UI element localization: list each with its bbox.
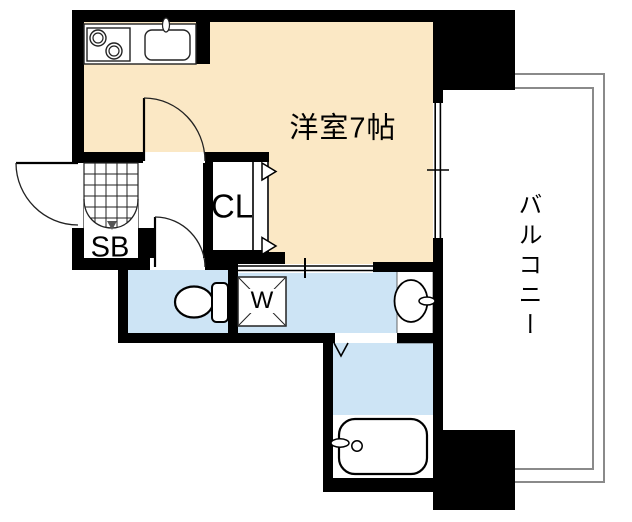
main-room-label: 洋室7帖 bbox=[289, 115, 396, 144]
wall-window-top-stub bbox=[433, 90, 443, 103]
wall-counter-stub bbox=[196, 22, 210, 64]
entry-door-arc bbox=[16, 163, 78, 225]
wall-wet-bottom bbox=[118, 333, 335, 343]
pillar-top-right bbox=[433, 10, 515, 90]
bathroom-door-opening bbox=[335, 333, 397, 343]
wall-basin-right bbox=[433, 238, 443, 343]
wall-bath-top bbox=[397, 333, 443, 343]
wall-closet-top bbox=[203, 152, 269, 162]
washer-label: W bbox=[249, 289, 276, 313]
wall-slide-right bbox=[373, 262, 433, 272]
entrance-opening bbox=[72, 163, 84, 226]
kitchen-counter bbox=[84, 18, 196, 64]
wall-bath-right bbox=[433, 343, 443, 430]
wall-left bbox=[72, 10, 84, 163]
floor-plan: 洋室7帖 CL SB W バルコニー bbox=[0, 0, 632, 522]
wall-toilet-divider bbox=[228, 258, 238, 343]
stove-icon bbox=[87, 28, 130, 61]
balcony-label: バルコニー bbox=[515, 192, 539, 342]
closet-label: CL bbox=[211, 190, 253, 223]
wall-genkan-top bbox=[72, 152, 143, 163]
toilet-door-opening bbox=[150, 258, 205, 270]
room-door-opening bbox=[143, 152, 205, 163]
bathtub-icon bbox=[331, 419, 427, 474]
wall-top bbox=[72, 10, 433, 22]
wall-toilet-left bbox=[118, 268, 128, 343]
shoebox-label: SB bbox=[91, 234, 130, 263]
wall-bath-bottom bbox=[323, 478, 443, 492]
pillar-bottom-right bbox=[433, 430, 515, 510]
wall-bath-left bbox=[323, 333, 333, 492]
